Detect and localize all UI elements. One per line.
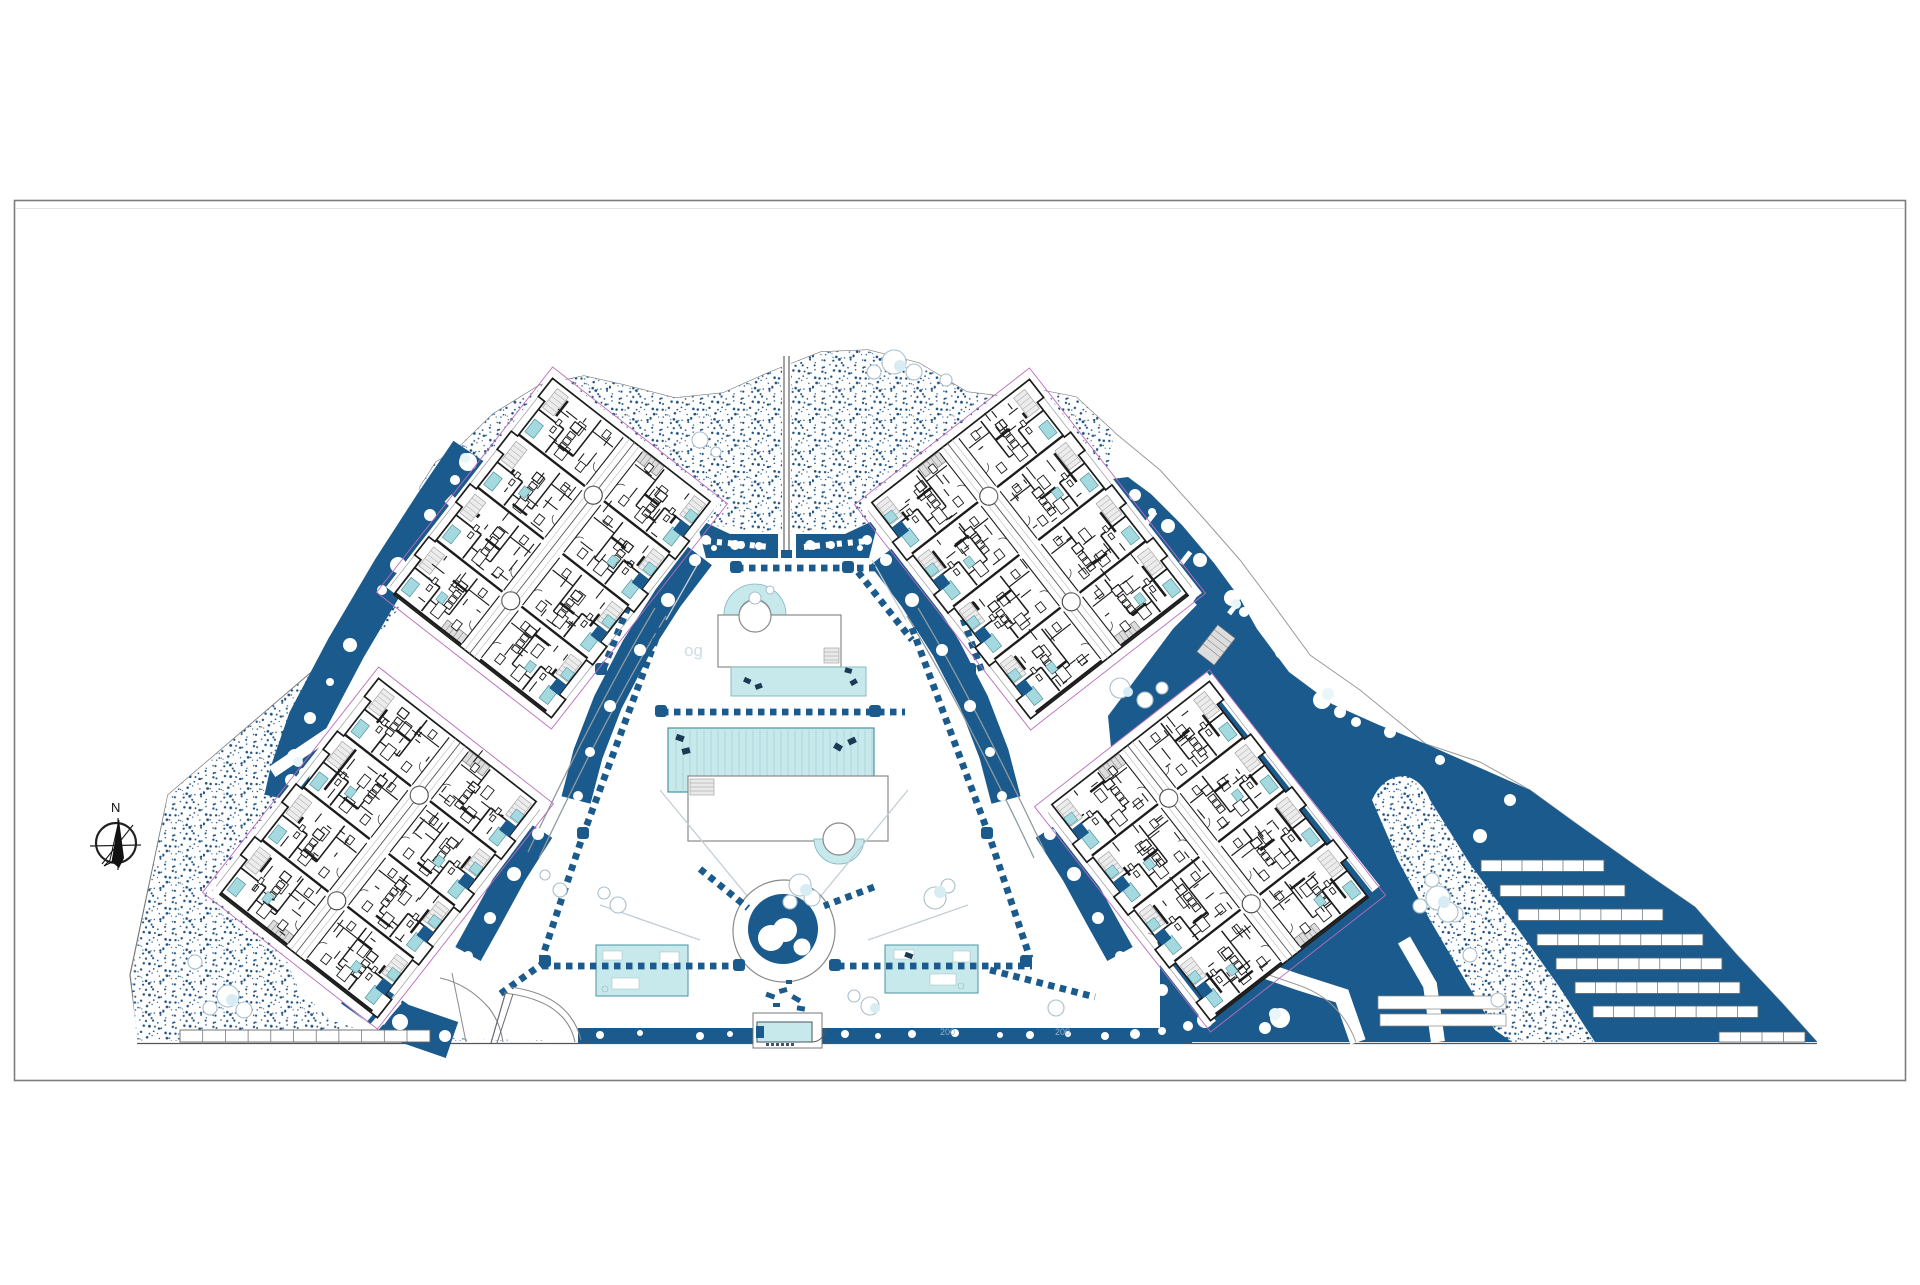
svg-text:og: og <box>684 641 703 660</box>
svg-text:200: 200 <box>940 1027 955 1037</box>
svg-text:N: N <box>111 800 120 815</box>
svg-text:200: 200 <box>1055 1027 1070 1037</box>
